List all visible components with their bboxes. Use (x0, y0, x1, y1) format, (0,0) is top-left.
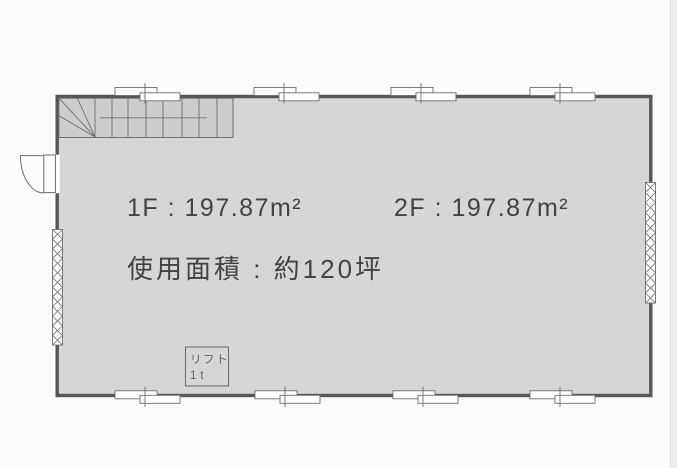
shutter-right (646, 183, 656, 304)
door-leaf (44, 155, 56, 193)
area-label-2f: 2F : 197.87m² (394, 194, 569, 222)
building-outline (57, 97, 651, 396)
usage-area-label: 使用面積 : 約120坪 (127, 254, 384, 284)
shutter-left (53, 230, 63, 346)
scan-edge (671, 0, 677, 468)
door-opening (55, 155, 59, 194)
floor-plan-drawing: リフト 1t 1F : 197.87m² 2F : 197.87m² 使用面積 … (0, 0, 677, 468)
lift-name-label: リフト (190, 354, 229, 366)
entrance-door (21, 155, 60, 194)
door-swing-arc (21, 156, 44, 193)
staircase (59, 98, 233, 137)
floor-plan-page: リフト 1t 1F : 197.87m² 2F : 197.87m² 使用面積 … (0, 0, 677, 468)
lift-capacity-label: 1t (190, 370, 208, 382)
area-label-1f: 1F : 197.87m² (127, 194, 302, 222)
